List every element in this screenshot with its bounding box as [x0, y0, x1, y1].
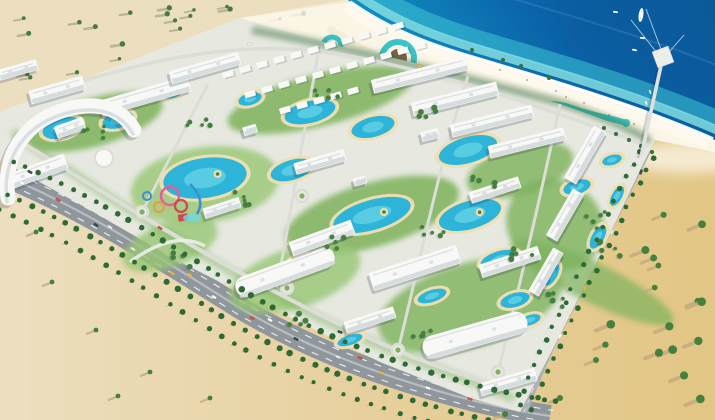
palm-tree — [29, 203, 35, 209]
tree — [85, 127, 89, 131]
palm-tree — [168, 302, 172, 306]
tree — [492, 184, 497, 189]
shrub — [165, 11, 170, 16]
palm-tree — [255, 334, 260, 339]
palm-tree — [557, 343, 563, 349]
tree — [530, 253, 534, 257]
beach-speck — [565, 96, 567, 98]
palm-tree — [94, 199, 99, 204]
palm-tree — [130, 278, 135, 283]
palm-tree — [78, 248, 84, 254]
tree — [599, 248, 604, 253]
palm-tree — [550, 325, 554, 329]
palm-tree — [231, 321, 236, 326]
palm-tree — [346, 376, 352, 382]
tree — [313, 88, 317, 92]
desert-tree — [665, 322, 673, 330]
tree — [329, 234, 334, 239]
tree — [591, 219, 596, 224]
tree — [442, 230, 446, 234]
palm-tree — [209, 307, 214, 312]
palm-tree — [11, 160, 16, 165]
tree — [617, 253, 623, 259]
shrub — [227, 6, 232, 11]
beach-palm — [519, 64, 523, 68]
desert-tree — [593, 357, 599, 363]
palm-tree — [260, 299, 266, 305]
tree — [471, 175, 476, 180]
palm-tree — [521, 388, 526, 393]
palm-tree — [542, 397, 547, 402]
palm-tree — [286, 369, 290, 373]
palm-tree — [324, 367, 330, 373]
beach-palm — [650, 150, 654, 154]
desert-tree — [208, 396, 213, 401]
roundabout-green — [495, 369, 500, 374]
palm-tree — [382, 406, 386, 410]
palm-tree — [372, 385, 377, 390]
shrub-shadow — [18, 34, 28, 36]
beach-palm — [614, 132, 618, 136]
palm-tree — [632, 162, 636, 166]
palm-tree — [631, 192, 635, 196]
palm-tree — [243, 328, 248, 333]
shrub-shadow — [219, 10, 229, 12]
shrub-shadow — [69, 23, 79, 25]
palm-tree — [52, 215, 57, 220]
palm-tree — [329, 333, 335, 339]
palm-tree — [283, 312, 288, 317]
palm-tree — [362, 382, 367, 387]
tree — [101, 136, 105, 140]
palm-tree — [472, 414, 478, 420]
palm-tree — [188, 294, 194, 300]
palm-tree — [601, 225, 605, 229]
palm-tree — [116, 270, 121, 275]
palm-tree — [141, 265, 147, 271]
shrub — [75, 70, 79, 74]
palm-tree — [248, 292, 254, 298]
palm-tree — [219, 334, 225, 340]
tree — [561, 297, 565, 301]
tree — [546, 292, 552, 298]
tree — [315, 93, 319, 97]
desert-tree — [668, 345, 677, 354]
palm-tree — [355, 397, 360, 402]
palm-tree — [160, 237, 166, 243]
tree — [438, 233, 443, 238]
tree — [603, 210, 607, 214]
palm-tree — [341, 392, 345, 396]
shrub — [93, 24, 98, 29]
palm-tree — [563, 331, 567, 335]
palm-tree — [638, 180, 643, 185]
desert-tree — [641, 246, 649, 254]
palm-tree — [599, 255, 604, 260]
palm-tree — [300, 357, 305, 362]
palm-tree — [434, 404, 439, 409]
desert-tree — [94, 328, 99, 333]
palm-tree — [412, 416, 416, 420]
beach-palm — [501, 58, 505, 62]
tree — [411, 334, 416, 339]
shrub — [77, 20, 82, 25]
palm-tree — [416, 366, 421, 371]
tree — [428, 329, 432, 333]
shrub — [188, 14, 192, 18]
palm-tree — [180, 309, 186, 315]
shrub — [26, 31, 31, 36]
tree — [243, 199, 247, 203]
palm-tree — [183, 252, 188, 257]
palm-tree — [300, 375, 304, 379]
palm-tree — [5, 193, 10, 198]
shrub-shadow — [20, 78, 29, 80]
palm-tree — [141, 285, 146, 290]
palm-tree — [82, 193, 87, 198]
palm-tree — [243, 347, 248, 352]
desert-tree — [680, 371, 688, 379]
shrub — [192, 8, 195, 11]
palm-tree — [50, 233, 55, 238]
tree — [560, 304, 565, 309]
palm-tree — [103, 204, 109, 210]
palm-tree — [606, 212, 611, 217]
palm-tree — [232, 341, 237, 346]
desert-tree — [502, 411, 508, 417]
palm-tree — [194, 258, 200, 264]
palm-tree — [71, 187, 76, 192]
tree — [422, 233, 426, 237]
tree — [598, 213, 603, 218]
palm-tree — [171, 244, 176, 249]
palm-tree — [216, 272, 221, 277]
palm-tree — [459, 411, 464, 416]
resort-masterplan-scene — [0, 0, 715, 420]
palm-tree — [553, 398, 559, 404]
palm-tree — [564, 300, 569, 305]
shrub — [120, 41, 125, 46]
palm-tree — [410, 398, 416, 404]
tree — [334, 246, 339, 251]
palm-tree — [557, 313, 561, 317]
shrub-shadow — [156, 15, 166, 17]
shrub — [22, 16, 26, 20]
palm-tree — [383, 389, 389, 395]
pool-island-tree — [216, 172, 220, 176]
palm-tree — [132, 260, 137, 265]
palm-tree — [403, 361, 408, 366]
palm-tree — [619, 218, 624, 223]
palm-tree — [109, 246, 114, 251]
palm-tree — [369, 402, 373, 406]
tree — [613, 247, 617, 251]
tree — [302, 318, 308, 324]
shrub — [173, 18, 177, 22]
palm-tree — [91, 255, 96, 260]
palm-tree — [617, 186, 622, 191]
shrub — [128, 10, 133, 15]
beach-palm — [627, 138, 631, 142]
palm-tree — [611, 199, 616, 204]
palm-tree — [64, 241, 68, 245]
palm-tree — [73, 226, 79, 232]
tree — [584, 214, 589, 219]
palm-tree — [257, 355, 262, 360]
palm-tree — [119, 252, 125, 258]
tree — [595, 226, 599, 230]
desert-tree — [34, 230, 39, 235]
tree — [101, 129, 105, 133]
palm-tree — [272, 362, 277, 367]
tree — [200, 123, 204, 127]
tree — [296, 311, 302, 317]
palm-tree — [312, 380, 316, 384]
palm-tree — [87, 233, 93, 239]
shrub — [28, 75, 32, 79]
car — [247, 42, 252, 45]
desert-tree — [698, 220, 706, 228]
splash-pool — [183, 214, 201, 222]
beach-speck — [499, 69, 501, 71]
desert-tree — [652, 285, 658, 291]
tree — [242, 195, 246, 199]
palm-tree — [35, 170, 41, 176]
palm-tree — [24, 220, 29, 225]
palm-tree — [153, 272, 158, 277]
desert-tree — [606, 320, 615, 329]
palm-tree — [441, 374, 446, 379]
desert-tree — [116, 394, 121, 399]
palm-tree — [535, 395, 541, 401]
palm-tree — [175, 286, 181, 292]
palm-tree — [365, 348, 370, 353]
tree — [550, 298, 556, 304]
aerial-render-image — [0, 0, 715, 420]
roundabout-green — [139, 209, 144, 214]
palm-tree — [532, 363, 536, 367]
tree — [417, 114, 422, 119]
tree — [204, 117, 208, 121]
palm-tree — [587, 280, 592, 285]
tree — [207, 123, 212, 128]
roundabout-green — [299, 193, 304, 198]
palm-tree — [199, 301, 204, 306]
tree — [102, 125, 106, 129]
palm-tree — [103, 262, 109, 268]
palm-tree — [98, 240, 103, 245]
shrub — [167, 5, 172, 10]
palm-tree — [390, 357, 396, 363]
palm-tree — [423, 401, 428, 406]
shrub — [118, 57, 121, 60]
shrub-shadow — [111, 45, 121, 47]
palm-tree — [59, 181, 64, 186]
palm-tree — [354, 343, 360, 349]
palm-tree — [586, 249, 591, 254]
pool-island-tree — [382, 210, 386, 214]
tree — [233, 190, 238, 195]
palm-tree — [581, 262, 586, 267]
palm-tree — [503, 389, 509, 395]
desert-tree — [655, 349, 663, 357]
tree — [327, 88, 332, 93]
beach-palm — [602, 126, 606, 130]
tree — [187, 264, 193, 270]
desert-tree — [148, 370, 153, 375]
tree — [476, 178, 482, 184]
palm-tree — [537, 349, 542, 354]
palm-tree — [607, 243, 613, 249]
palm-tree — [154, 293, 159, 298]
beach-speck — [526, 79, 528, 81]
desert-tree — [661, 212, 667, 218]
palm-tree — [464, 379, 470, 385]
desert-tree — [696, 395, 705, 404]
tree — [433, 109, 439, 115]
palm-tree — [327, 386, 332, 391]
palm-tree — [164, 279, 170, 285]
palm-tree — [343, 339, 348, 344]
tree — [326, 95, 331, 100]
palm-tree — [518, 402, 523, 407]
beach-speck — [583, 102, 585, 104]
pool-island-tree — [478, 210, 482, 214]
shrub-shadow — [158, 9, 168, 11]
tree — [514, 252, 518, 256]
palm-tree — [286, 350, 292, 356]
palm-tree — [594, 237, 599, 242]
tree — [420, 225, 424, 229]
beach-speck — [633, 123, 635, 125]
palm-tree — [551, 356, 556, 361]
palm-tree — [540, 381, 545, 386]
palm-tree — [594, 268, 600, 274]
tree — [551, 291, 556, 296]
tree — [341, 235, 347, 241]
palm-tree — [448, 408, 454, 414]
palm-tree — [544, 337, 550, 343]
palm-tree — [569, 319, 573, 323]
palm-tree — [317, 328, 323, 334]
palm-tree — [115, 211, 121, 217]
palm-tree — [206, 266, 211, 271]
shrub-shadow — [67, 73, 76, 75]
palm-tree — [62, 220, 68, 226]
palm-tree — [334, 371, 340, 377]
palm-tree — [568, 287, 572, 291]
palm-tree — [453, 377, 459, 383]
palm-tree — [582, 293, 586, 297]
shrub-shadow — [120, 14, 130, 16]
roundabout-green — [395, 347, 400, 352]
desert-tree — [655, 263, 661, 269]
palm-tree — [150, 232, 155, 237]
palm-tree — [312, 362, 318, 368]
tree — [325, 244, 330, 249]
desert-tree — [697, 297, 706, 306]
tree — [185, 123, 189, 127]
palm-tree — [529, 407, 534, 412]
tree — [334, 240, 338, 244]
desert-tree — [650, 255, 657, 262]
palm-tree — [428, 369, 434, 375]
palm-tree — [264, 339, 270, 345]
palm-tree — [306, 323, 311, 328]
palm-tree — [194, 318, 198, 322]
beach-palm — [470, 48, 474, 52]
beach-speck — [608, 114, 610, 116]
desert-tree — [694, 337, 702, 345]
palm-tree — [545, 369, 550, 374]
tree — [287, 322, 292, 327]
palm-tree — [270, 304, 276, 310]
palm-tree — [139, 225, 144, 230]
palm-tree — [529, 395, 534, 400]
tree — [424, 115, 429, 120]
desert-tree — [602, 341, 608, 347]
palm-tree — [644, 168, 649, 173]
palm-tree — [17, 198, 22, 203]
tree — [421, 334, 425, 338]
palm-tree — [239, 286, 245, 292]
roundabout-green — [284, 285, 289, 290]
palm-tree — [651, 155, 657, 161]
tree — [170, 255, 175, 260]
palm-tree — [293, 317, 298, 322]
tree — [335, 94, 340, 99]
tree — [243, 202, 249, 208]
beach-speck — [555, 90, 557, 92]
shrub-shadow — [84, 28, 94, 30]
palm-tree — [379, 354, 384, 359]
palm-tree — [575, 305, 581, 311]
palm-tree — [227, 279, 232, 284]
palm-tree — [207, 326, 212, 331]
palm-tree — [38, 227, 43, 232]
palm-tree — [11, 213, 16, 218]
palm-tree — [41, 209, 46, 214]
palm-tree — [23, 164, 28, 169]
shrub-shadow — [165, 21, 174, 23]
palm-tree — [218, 313, 224, 319]
palm-tree — [526, 375, 530, 379]
tree — [430, 231, 434, 235]
palm-tree — [624, 205, 629, 210]
palm-tree — [398, 411, 403, 416]
palm-tree — [614, 231, 619, 236]
palm-tree — [624, 174, 629, 179]
desert-tree — [50, 280, 55, 285]
tree — [511, 246, 517, 252]
palm-tree — [398, 394, 404, 400]
palm-tree — [478, 383, 483, 388]
shrub — [178, 27, 182, 31]
beach-palm — [547, 76, 551, 80]
palm-tree — [574, 274, 579, 279]
palm-tree — [125, 217, 131, 223]
palm-tree — [491, 387, 497, 393]
palm-tree — [48, 176, 53, 181]
palm-tree — [277, 345, 283, 351]
